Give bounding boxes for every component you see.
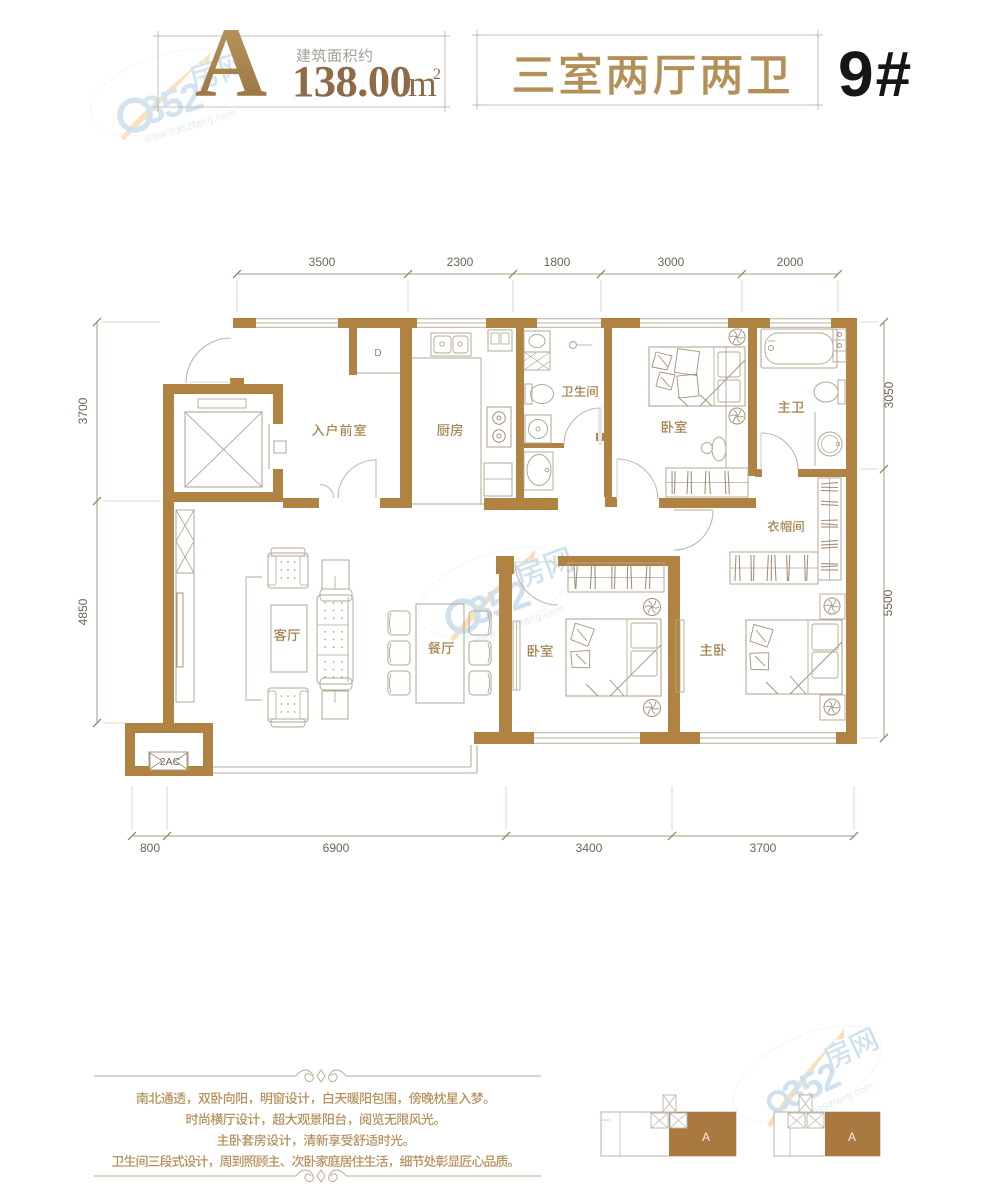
svg-text:D: D (374, 348, 381, 359)
svg-text:138.00: 138.00 (292, 56, 411, 106)
svg-text:800: 800 (140, 841, 160, 855)
svg-text:2000: 2000 (777, 255, 804, 269)
svg-text:2AC: 2AC (160, 756, 181, 768)
svg-text:3700: 3700 (750, 841, 777, 855)
svg-text:A: A (195, 7, 267, 118)
svg-text:4850: 4850 (76, 598, 90, 625)
svg-text:6900: 6900 (323, 841, 350, 855)
svg-text:2300: 2300 (447, 255, 474, 269)
svg-text:2: 2 (433, 66, 441, 83)
svg-text:3400: 3400 (576, 841, 603, 855)
svg-text:9#: 9# (838, 38, 913, 110)
svg-text:3050: 3050 (882, 381, 896, 408)
svg-text:1800: 1800 (544, 255, 571, 269)
svg-text:A: A (848, 1130, 856, 1144)
svg-text:3700: 3700 (76, 397, 90, 424)
svg-text:3000: 3000 (658, 255, 685, 269)
svg-text:A: A (702, 1130, 710, 1144)
svg-text:5500: 5500 (881, 589, 895, 616)
svg-text:3500: 3500 (309, 255, 336, 269)
